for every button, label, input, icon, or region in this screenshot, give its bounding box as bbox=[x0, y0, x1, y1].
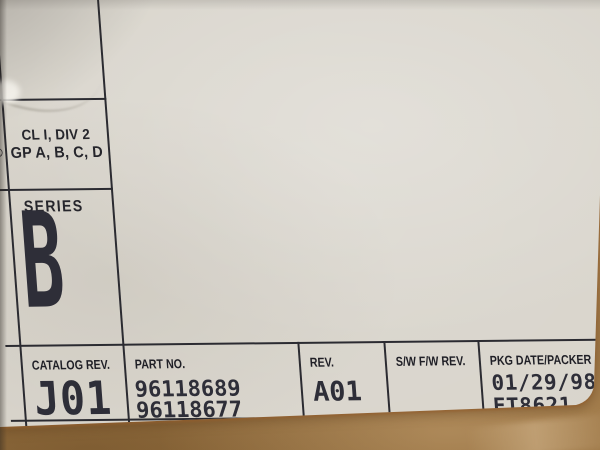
catalog-rev-cell: CATALOG REV. J01 bbox=[19, 346, 128, 429]
swfw-rev-cell: S/W F/W REV. bbox=[385, 342, 483, 425]
swfw-rev-value bbox=[387, 370, 479, 371]
registered-trademark-icon: ® bbox=[0, 145, 3, 160]
series-cell: SERIES B bbox=[8, 190, 122, 343]
rev-value: A01 bbox=[312, 380, 388, 405]
catalog-rev-value: J01 bbox=[33, 378, 113, 419]
part-no-header: PART NO. bbox=[134, 358, 185, 371]
packer-id-value: ET8621 bbox=[492, 393, 600, 418]
label-paper-wrap: ® CL I, DIV 2 GP A, B, C, D SERIES B CAT… bbox=[0, 0, 600, 450]
certification-class-text: CL I, DIV 2 bbox=[21, 127, 91, 145]
part-no-cell: PART NO. 96118689 96118677 bbox=[124, 344, 303, 428]
catalog-rev-header: CATALOG REV. bbox=[31, 359, 110, 372]
box-label-photo: ® CL I, DIV 2 GP A, B, C, D SERIES B CAT… bbox=[0, 0, 600, 450]
certification-group-text: GP A, B, C, D bbox=[10, 144, 103, 162]
rev-cell: REV. A01 bbox=[299, 343, 389, 426]
swfw-rev-header: S/W F/W REV. bbox=[395, 355, 465, 368]
pkg-date-value: 01/29/98 bbox=[491, 370, 600, 395]
part-no-value-2: 96118677 bbox=[135, 399, 303, 422]
pkg-date-packer-header: PKG DATE/PACKER bbox=[489, 354, 591, 367]
certification-cell: ® CL I, DIV 2 GP A, B, C, D bbox=[1, 100, 110, 189]
rev-header: REV. bbox=[309, 357, 334, 369]
pkg-date-packer-cell: PKG DATE/PACKER 01/29/98 ET8621 bbox=[479, 340, 600, 424]
label-paper: ® CL I, DIV 2 GP A, B, C, D SERIES B CAT… bbox=[0, 0, 600, 450]
